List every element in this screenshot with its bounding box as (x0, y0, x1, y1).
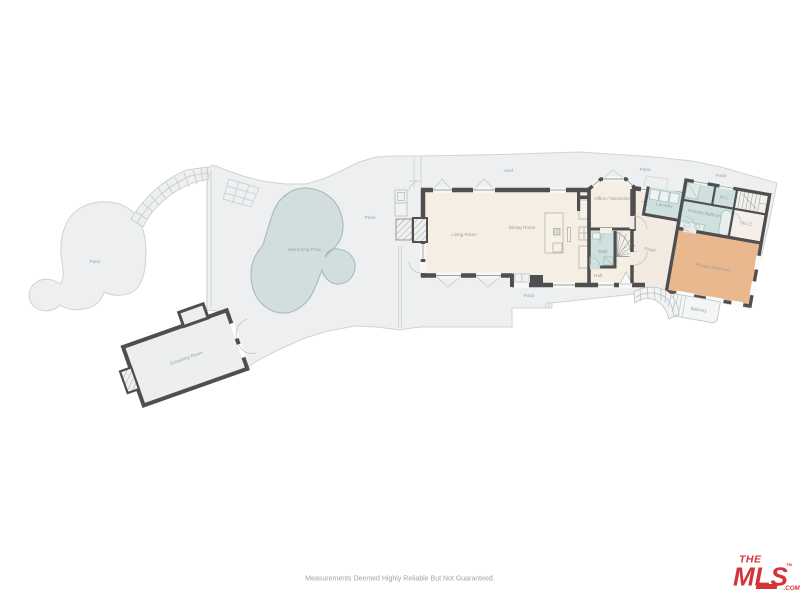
svg-text:Patio: Patio (90, 259, 101, 265)
svg-text:Measurements Deemed Highly Rel: Measurements Deemed Highly Reliable But … (305, 576, 495, 583)
svg-text:Patio: Patio (524, 293, 535, 299)
svg-text:Swimming Pool: Swimming Pool (287, 247, 320, 253)
svg-text:Dining Room: Dining Room (509, 225, 536, 230)
svg-text:Patio: Patio (365, 215, 376, 221)
svg-text:.COM: .COM (784, 585, 800, 592)
svg-text:Bath: Bath (598, 249, 608, 254)
svg-text:Patio: Patio (640, 167, 651, 173)
svg-text:TM: TM (786, 562, 792, 567)
svg-text:Living Room: Living Room (451, 232, 477, 237)
svg-text:Office / Wardrobe: Office / Wardrobe (594, 196, 630, 201)
svg-text:Patio: Patio (716, 173, 727, 179)
svg-text:Hall: Hall (594, 273, 602, 278)
svg-text:Yard: Yard (503, 168, 513, 174)
